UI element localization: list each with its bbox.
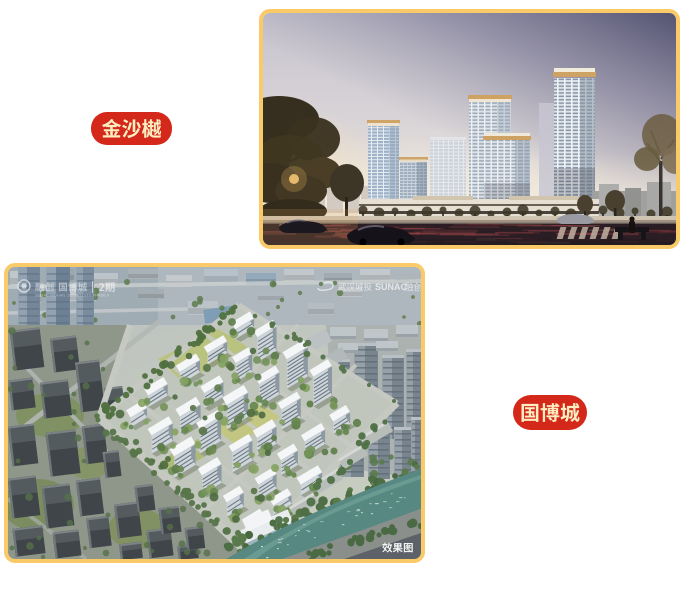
- svg-text:SUNAC WUHAN GUOBO CITY PHASE I: SUNAC WUHAN GUOBO CITY PHASE II: [35, 293, 109, 298]
- svg-text:SUNAC: SUNAC: [375, 282, 408, 292]
